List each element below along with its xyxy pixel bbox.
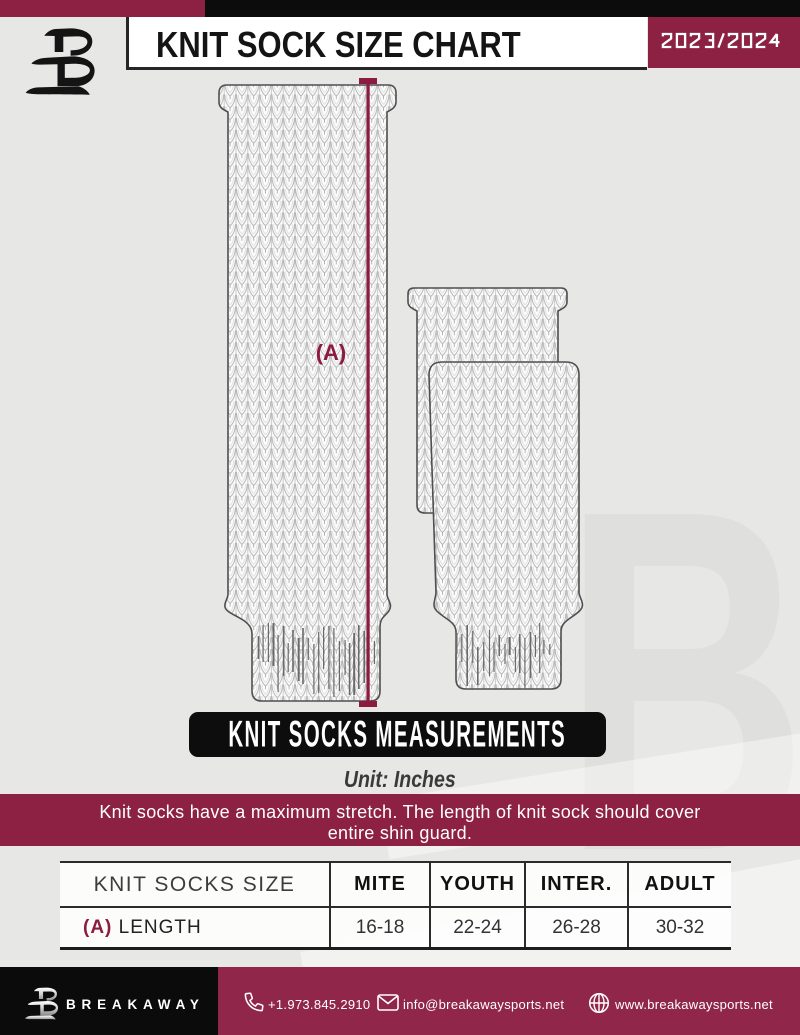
svg-text:(A): (A) bbox=[316, 340, 347, 365]
